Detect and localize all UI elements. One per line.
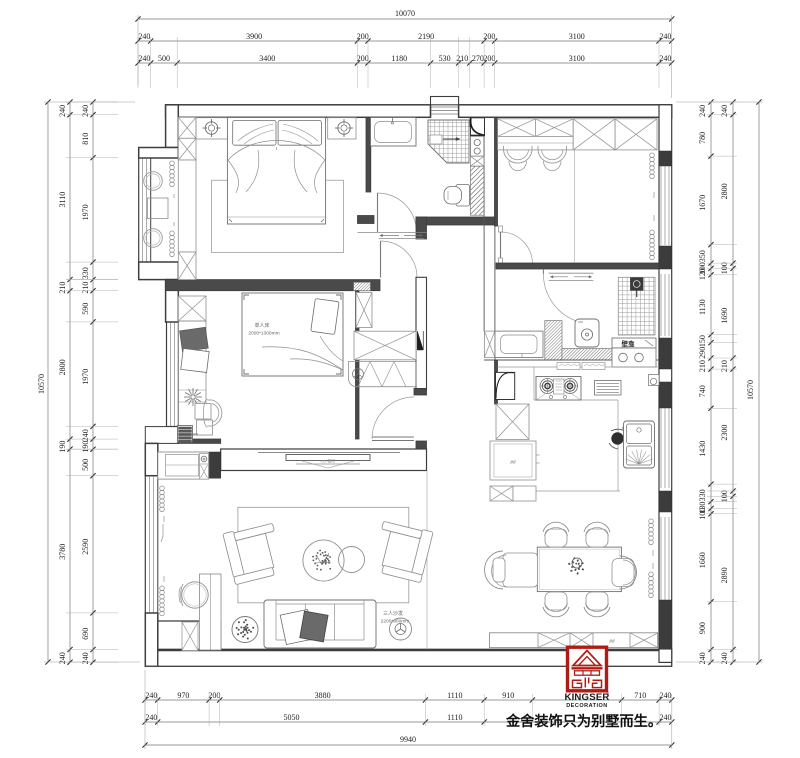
svg-text:240: 240	[659, 54, 671, 63]
svg-text:##: ##	[609, 639, 615, 645]
svg-text:330: 330	[81, 267, 90, 279]
svg-text:三人沙发: 三人沙发	[383, 610, 403, 617]
svg-text:100: 100	[698, 508, 707, 520]
svg-text:3400: 3400	[259, 54, 275, 63]
svg-text:壁龛: 壁龛	[622, 339, 636, 348]
svg-text:210: 210	[456, 54, 468, 63]
svg-text:500: 500	[158, 54, 170, 63]
svg-text:190: 190	[58, 441, 67, 453]
svg-text:200: 200	[357, 32, 369, 41]
svg-text:1970: 1970	[81, 369, 90, 385]
svg-text:240: 240	[720, 652, 729, 664]
svg-text:KINGSER: KINGSER	[564, 692, 609, 703]
svg-text:240: 240	[138, 54, 150, 63]
svg-text:780: 780	[698, 132, 707, 144]
svg-text:910: 910	[502, 691, 514, 700]
svg-text:530: 530	[439, 54, 451, 63]
svg-text:1130: 1130	[698, 299, 707, 315]
svg-text:210: 210	[81, 282, 90, 294]
svg-text:##: ##	[510, 460, 516, 466]
svg-text:10570: 10570	[746, 380, 755, 400]
svg-text:740: 740	[698, 385, 707, 397]
svg-text:3780: 3780	[58, 544, 67, 560]
svg-text:200: 200	[483, 54, 495, 63]
svg-text:1180: 1180	[391, 54, 407, 63]
svg-text:3100: 3100	[569, 54, 585, 63]
svg-text:2590: 2590	[81, 539, 90, 555]
svg-text:240: 240	[58, 652, 67, 664]
svg-text:1660: 1660	[698, 552, 707, 568]
svg-text:240: 240	[138, 32, 150, 41]
svg-text:590: 590	[81, 303, 90, 315]
svg-text:240: 240	[81, 652, 90, 664]
svg-text:240: 240	[145, 713, 157, 722]
svg-text:2890: 2890	[720, 567, 729, 583]
svg-text:200: 200	[357, 54, 369, 63]
svg-text:240: 240	[720, 105, 729, 117]
svg-text:金舍装饰只为别墅而生。: 金舍装饰只为别墅而生。	[505, 713, 662, 730]
svg-text:270: 270	[472, 54, 484, 63]
svg-text:500: 500	[81, 459, 90, 471]
svg-text:210: 210	[698, 360, 707, 372]
svg-text:240: 240	[698, 105, 707, 117]
svg-text:190: 190	[81, 441, 90, 453]
svg-text:240: 240	[145, 691, 157, 700]
svg-text:240: 240	[81, 429, 90, 441]
svg-text:240: 240	[81, 105, 90, 117]
svg-text:240: 240	[659, 32, 671, 41]
svg-text:120: 120	[698, 268, 707, 280]
svg-text:1110: 1110	[447, 713, 462, 722]
svg-text:1110: 1110	[447, 691, 462, 700]
svg-text:900: 900	[698, 622, 707, 634]
svg-text:1970: 1970	[81, 204, 90, 220]
svg-text:350: 350	[698, 250, 707, 262]
svg-text:单人床: 单人床	[254, 322, 269, 329]
svg-text:®: ®	[607, 692, 610, 696]
svg-text:3110: 3110	[58, 192, 67, 208]
svg-text:150: 150	[698, 335, 707, 347]
svg-text:240: 240	[698, 652, 707, 664]
svg-text:200: 200	[208, 691, 220, 700]
svg-text:710: 710	[634, 691, 646, 700]
svg-text:210: 210	[720, 360, 729, 372]
svg-text:2000*1300mm: 2000*1300mm	[248, 331, 279, 337]
svg-text:210: 210	[58, 282, 67, 294]
svg-text:2800: 2800	[58, 359, 67, 375]
svg-text:330: 330	[698, 489, 707, 501]
svg-text:1670: 1670	[698, 195, 707, 211]
svg-text:2190: 2190	[418, 32, 434, 41]
svg-text:10570: 10570	[37, 374, 46, 394]
svg-text:690: 690	[81, 628, 90, 640]
svg-text:810: 810	[81, 133, 90, 145]
svg-text:3900: 3900	[246, 32, 262, 41]
svg-text:290: 290	[698, 347, 707, 359]
svg-text:2300: 2300	[720, 425, 729, 441]
svg-text:200: 200	[483, 32, 495, 41]
svg-text:1690: 1690	[720, 308, 729, 324]
svg-text:10070: 10070	[395, 9, 415, 18]
svg-text:240: 240	[660, 691, 672, 700]
svg-text:5050: 5050	[284, 713, 300, 722]
svg-text:9940: 9940	[400, 735, 416, 744]
svg-text:970: 970	[177, 691, 189, 700]
svg-text:DECORATION: DECORATION	[566, 703, 608, 709]
svg-text:1430: 1430	[698, 441, 707, 457]
svg-text:CD 视听: CD 视听	[321, 457, 336, 463]
svg-text:2800: 2800	[720, 183, 729, 199]
svg-text:3100: 3100	[569, 32, 585, 41]
svg-text:3880: 3880	[315, 691, 331, 700]
svg-text:240: 240	[58, 105, 67, 117]
